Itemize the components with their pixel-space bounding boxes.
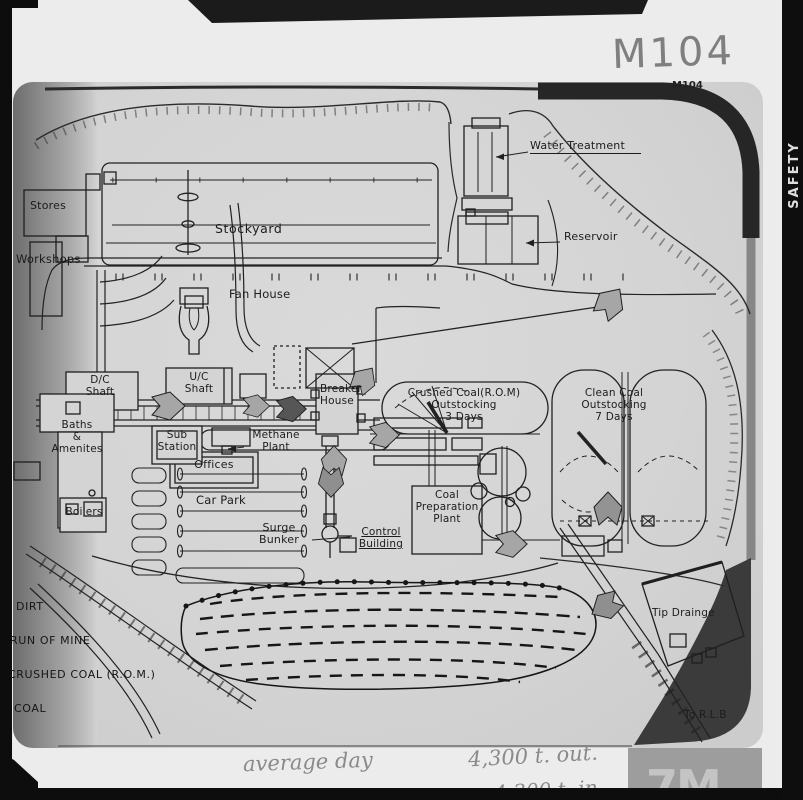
label-tip-drainage: Tip Drainge bbox=[652, 608, 715, 620]
label-crushed-outstocking: Crushed Coal(R.O.M) Outstocking 3 Days bbox=[388, 388, 540, 423]
handwritten-reference: M104 bbox=[611, 28, 735, 78]
label-to-rlb: To R.L.B bbox=[684, 710, 727, 722]
label-car-park: Car Park bbox=[196, 494, 246, 507]
label-dc-shaft: D/C Shaft bbox=[70, 375, 130, 399]
label-boilers: Boilers bbox=[62, 507, 106, 519]
sheet-reference-label: M104 bbox=[672, 80, 703, 91]
label-water-treatment: Water Treatment bbox=[530, 140, 641, 154]
legend-item-dirt: DIRT bbox=[16, 600, 44, 613]
legend-item-run-of-mine: RUN OF MINE bbox=[10, 634, 90, 647]
label-uc-shaft: U/C Shaft bbox=[170, 372, 228, 396]
frame-left-strip bbox=[0, 0, 12, 800]
photograph-of-site-plan: M104 Stockyard Stores Workshops Water Tr… bbox=[0, 0, 803, 800]
label-fan-house: Fan House bbox=[229, 288, 290, 301]
legend-item-crushed-coal: CRUSHED COAL (R.O.M.) bbox=[8, 668, 155, 681]
label-coal-prep-plant: Coal Preparation Plant bbox=[414, 490, 480, 525]
label-control-building: Control Building bbox=[350, 527, 412, 551]
frame-bottom-band bbox=[28, 788, 803, 800]
label-clean-outstocking: Clean Coal Outstocking 7 Days bbox=[560, 388, 668, 423]
label-reservoir: Reservoir bbox=[564, 231, 618, 243]
label-methane-plant: Methane Plant bbox=[245, 430, 307, 454]
legend-item-coal: COAL bbox=[14, 702, 46, 715]
label-stockyard: Stockyard bbox=[215, 222, 282, 236]
label-baths-amenities: Baths & Amenites bbox=[40, 420, 114, 455]
film-edge-text: SAFETY FILM bbox=[787, 110, 803, 240]
handwritten-annotation-average-day: average day bbox=[243, 748, 374, 777]
label-sub-station: Sub Station bbox=[154, 430, 200, 454]
film-fold-shadow bbox=[13, 82, 97, 748]
label-workshops: Workshops bbox=[16, 253, 81, 266]
label-breaker-house: Breaker House bbox=[320, 384, 362, 408]
label-surge-bunker: Surge Bunker bbox=[248, 522, 310, 547]
frame-top-left bbox=[0, 0, 38, 8]
label-stores: Stores bbox=[30, 200, 66, 212]
label-offices: Offices bbox=[176, 459, 252, 471]
